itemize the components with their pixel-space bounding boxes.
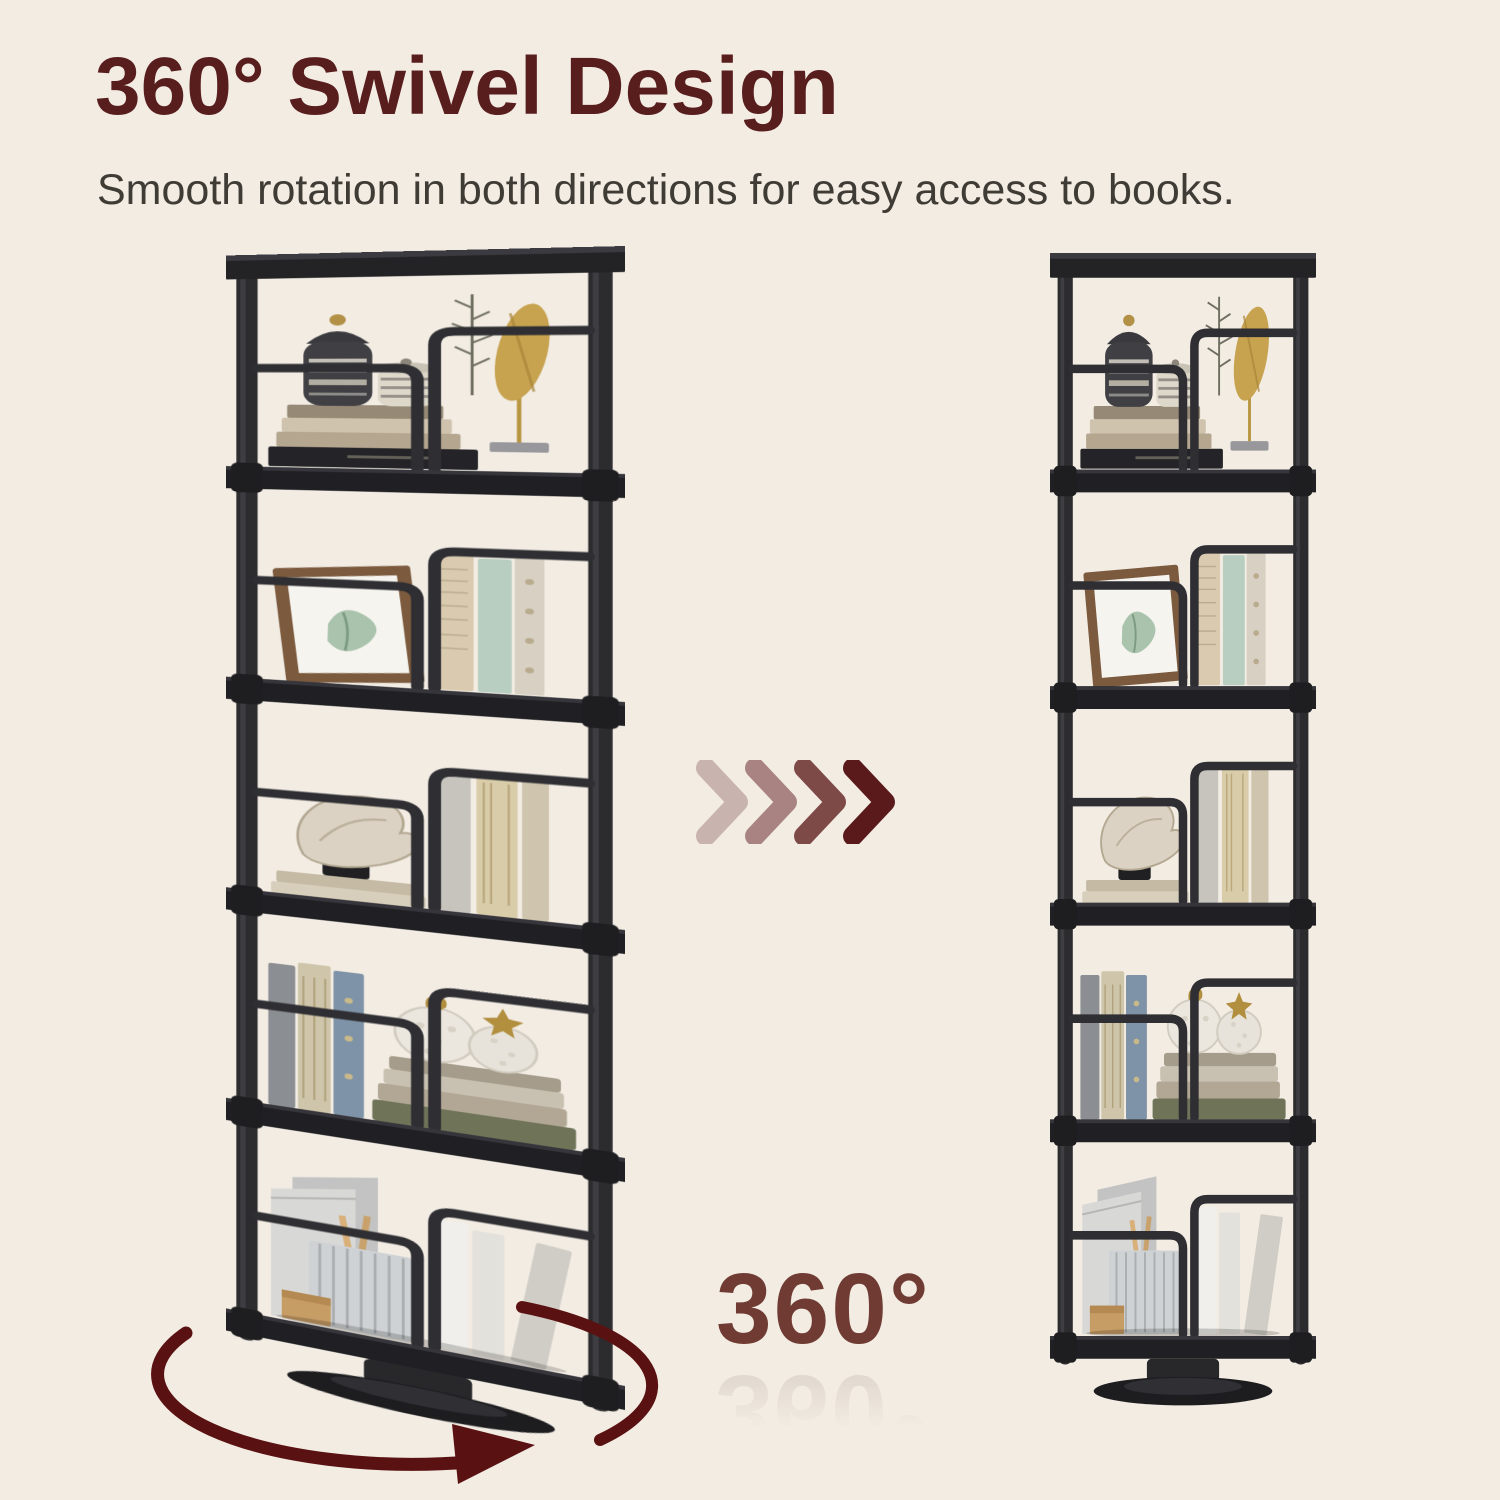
left-bookshelf xyxy=(226,246,625,1486)
right-bookshelf xyxy=(1050,252,1316,1432)
product-feature-image: 360° Swivel Design Smooth rotation in bo… xyxy=(0,0,1500,1500)
page-subtitle: Smooth rotation in both directions for e… xyxy=(97,166,1235,215)
left-bookshelf-graphic xyxy=(226,246,625,1486)
rotation-degree-label: 360° xyxy=(716,1252,931,1367)
transition-chevrons xyxy=(696,760,896,844)
page-title: 360° Swivel Design xyxy=(95,40,839,134)
chevron-right-icon xyxy=(755,768,787,836)
chevron-right-icon xyxy=(706,768,738,836)
chevron-right-icon xyxy=(853,768,885,836)
rotation-degree-reflection: 360° xyxy=(716,1352,931,1467)
chevron-right-icon xyxy=(804,768,836,836)
right-bookshelf-graphic xyxy=(1050,252,1316,1432)
